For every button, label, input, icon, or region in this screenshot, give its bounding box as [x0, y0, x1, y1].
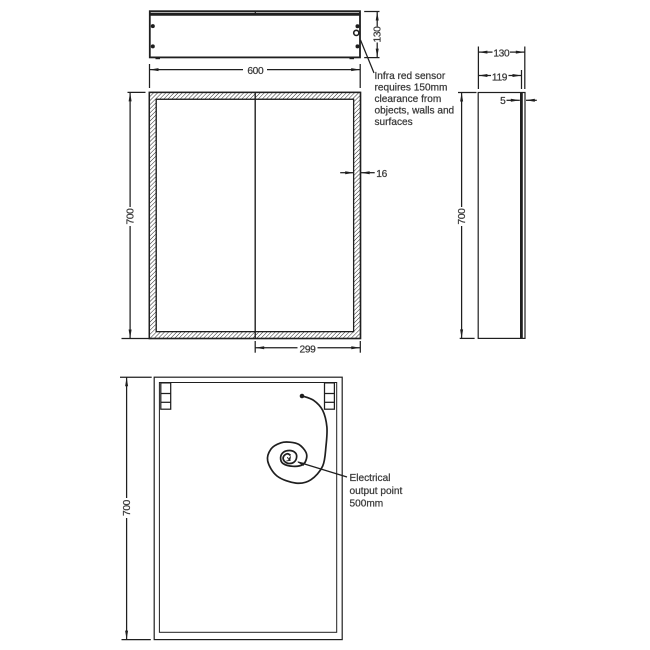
- svg-text:700: 700: [457, 208, 468, 225]
- svg-text:16: 16: [376, 169, 387, 180]
- svg-text:130: 130: [373, 26, 384, 43]
- svg-text:surfaces: surfaces: [375, 117, 413, 128]
- svg-text:500mm: 500mm: [350, 499, 384, 510]
- svg-text:Electrical: Electrical: [350, 473, 391, 484]
- svg-text:700: 700: [122, 499, 133, 516]
- svg-text:299: 299: [300, 344, 317, 355]
- svg-text:130: 130: [493, 49, 510, 60]
- svg-text:5: 5: [500, 96, 506, 107]
- svg-text:Infra red sensor: Infra red sensor: [375, 71, 446, 82]
- svg-text:119: 119: [492, 72, 508, 83]
- svg-text:objects, walls and: objects, walls and: [375, 106, 455, 117]
- svg-text:output point: output point: [350, 486, 403, 497]
- svg-text:requires 150mm: requires 150mm: [375, 83, 448, 94]
- svg-text:clearance from: clearance from: [375, 94, 442, 105]
- svg-text:600: 600: [247, 66, 264, 77]
- svg-text:700: 700: [126, 208, 137, 225]
